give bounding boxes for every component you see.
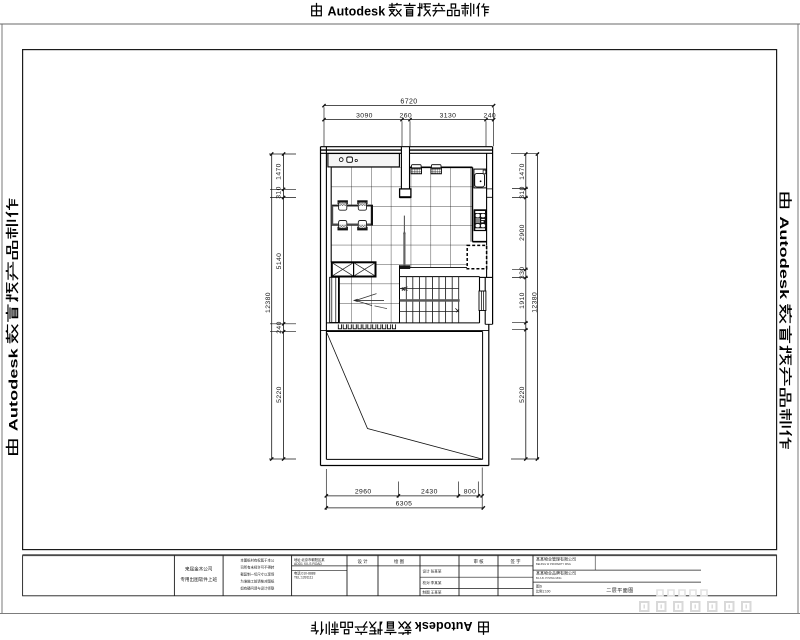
svg-text:5220: 5220 bbox=[519, 386, 526, 403]
svg-text:为准施工前请核对图纸: 为准施工前请核对图纸 bbox=[240, 579, 275, 584]
svg-text:5140: 5140 bbox=[276, 253, 283, 270]
svg-text:制图 王某某: 制图 王某某 bbox=[423, 590, 442, 595]
svg-text:240: 240 bbox=[484, 112, 497, 119]
svg-text:来届金木公司: 来届金木公司 bbox=[185, 566, 213, 573]
svg-text:1470: 1470 bbox=[276, 163, 283, 180]
svg-text:BJ A.B. PYMNG MNG: BJ A.B. PYMNG MNG bbox=[536, 576, 562, 580]
svg-text:2430: 2430 bbox=[421, 489, 438, 496]
svg-text:司所有未经许可不得转: 司所有未经许可不得转 bbox=[240, 565, 275, 570]
svg-text:TEL:1391111: TEL:1391111 bbox=[294, 576, 313, 580]
svg-text:2960: 2960 bbox=[355, 489, 372, 496]
svg-text:3130: 3130 bbox=[440, 112, 457, 119]
svg-text:载复制一切尺寸以现场: 载复制一切尺寸以现场 bbox=[240, 572, 275, 577]
svg-text:6305: 6305 bbox=[396, 501, 413, 508]
svg-text:比例1:100: 比例1:100 bbox=[536, 589, 551, 594]
svg-text:图S: 图S bbox=[536, 585, 543, 589]
svg-text:本图纸村有权属于本公: 本图纸村有权属于本公 bbox=[240, 558, 275, 563]
svg-text:审 核: 审 核 bbox=[473, 558, 484, 565]
svg-text:5220: 5220 bbox=[276, 386, 283, 403]
svg-text:某某物业品牌有限公司: 某某物业品牌有限公司 bbox=[536, 570, 576, 576]
svg-text:3090: 3090 bbox=[356, 112, 373, 119]
svg-text:1910: 1910 bbox=[519, 292, 526, 309]
svg-text:专用出图软件上班: 专用出图软件上班 bbox=[180, 576, 217, 583]
svg-text:310: 310 bbox=[519, 186, 526, 199]
svg-text:260: 260 bbox=[400, 112, 413, 119]
svg-text:2900: 2900 bbox=[519, 224, 526, 241]
svg-text:ADD1 XX-S ROAD: ADD1 XX-S ROAD bbox=[294, 562, 322, 566]
svg-text:310: 310 bbox=[276, 186, 283, 199]
svg-text:240: 240 bbox=[276, 321, 283, 334]
svg-text:某某物业管理有限公司: 某某物业管理有限公司 bbox=[536, 556, 576, 562]
svg-text:二层平面图: 二层平面图 bbox=[606, 588, 634, 594]
svg-text:800: 800 bbox=[464, 489, 477, 496]
svg-text:绘 图: 绘 图 bbox=[394, 558, 405, 565]
svg-text:12380: 12380 bbox=[265, 292, 272, 313]
svg-text:如有疑问请与设计师联: 如有疑问请与设计师联 bbox=[240, 586, 275, 591]
svg-text:BEIJING W PROPERTY MNG: BEIJING W PROPERTY MNG bbox=[536, 562, 571, 566]
svg-text:330: 330 bbox=[519, 267, 526, 280]
svg-text:设 计: 设 计 bbox=[357, 558, 368, 565]
svg-text:12380: 12380 bbox=[532, 292, 539, 313]
svg-text:设计 张某某: 设计 张某某 bbox=[423, 569, 442, 574]
svg-text:校对 李某某: 校对 李某某 bbox=[423, 580, 442, 585]
svg-text:签 字: 签 字 bbox=[510, 558, 521, 564]
svg-text:6720: 6720 bbox=[400, 99, 417, 106]
svg-text:1470: 1470 bbox=[519, 163, 526, 180]
